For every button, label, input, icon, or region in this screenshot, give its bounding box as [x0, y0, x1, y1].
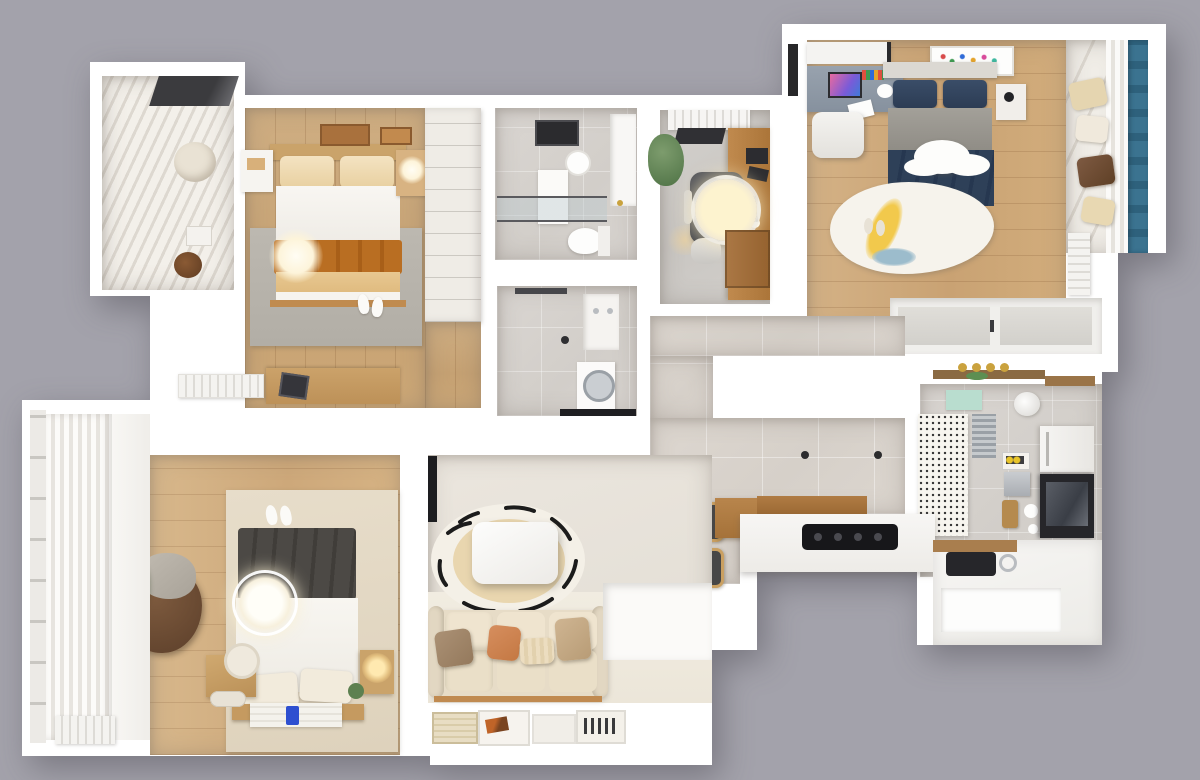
master-ceiling-lamp	[269, 229, 323, 283]
living-room	[428, 455, 712, 703]
master-balcony-blinds	[102, 76, 234, 290]
breakfast-tray	[210, 691, 246, 707]
sink-counter-block	[933, 540, 1102, 645]
kids-radiator	[1068, 233, 1090, 295]
artwork-3	[532, 714, 576, 744]
balcony-ledge	[112, 414, 150, 740]
bay-pillow-cream	[1075, 114, 1110, 143]
kids-wardrobe	[890, 298, 1102, 354]
bull-logo-icon	[162, 417, 198, 449]
projector-screen	[674, 128, 726, 144]
teal-curtain	[1128, 40, 1148, 253]
wardrobe-handle	[990, 320, 994, 332]
master-balcony	[102, 76, 234, 290]
kids-nightstand	[996, 84, 1026, 120]
balcony-window-glass	[149, 76, 239, 106]
oven	[1040, 474, 1094, 538]
laundry-vanity	[583, 294, 619, 350]
phone	[286, 706, 299, 725]
master-footboard	[270, 300, 406, 307]
cooktop	[802, 524, 898, 550]
pillow-orange	[486, 624, 521, 661]
cooktop-burners	[814, 533, 822, 541]
radiator-unit	[178, 374, 264, 398]
master-pillow-left	[280, 156, 334, 188]
small-plant	[348, 683, 364, 699]
counter-step	[941, 588, 1061, 632]
sheer-curtains	[46, 414, 112, 740]
cutting-board	[1002, 500, 1018, 528]
toilet-tank	[598, 226, 610, 256]
ceiling-exhaust-vent	[535, 120, 579, 146]
bowls	[1024, 504, 1038, 518]
wardrobe-door-1	[898, 307, 990, 345]
floor-socket-1	[801, 451, 809, 459]
second-bedroom	[150, 455, 400, 755]
desk-organizer-1	[746, 148, 768, 164]
laptop-screen	[828, 72, 862, 98]
ac-unit	[668, 110, 750, 130]
round-mirror	[567, 152, 589, 174]
brand-name-en: HONG NIU DECORATION	[206, 443, 333, 450]
b-pillow-right	[299, 668, 353, 704]
fridge-handle	[1046, 432, 1049, 466]
hallway-corridor	[650, 356, 713, 420]
kitchen-sink	[946, 552, 996, 576]
study-cabinet	[725, 230, 770, 288]
spice-board	[1002, 452, 1030, 470]
warm-table-lamp	[362, 653, 392, 683]
door-threshold-mat	[560, 409, 636, 416]
kids-pillow-left	[893, 80, 937, 108]
gold-faucet	[617, 200, 623, 206]
kids-room-door-opening	[788, 44, 798, 96]
master-wardrobe	[425, 108, 481, 322]
books-stack	[247, 158, 265, 170]
kitchen-peninsula	[715, 496, 935, 574]
washer-door	[583, 370, 615, 402]
shower-rail	[515, 288, 567, 294]
watermark: 红牛装饰 HONG NIU DECORATION	[162, 412, 392, 454]
kids-pillow-right	[943, 80, 987, 108]
master-pillow-right	[340, 156, 394, 188]
study-plant	[648, 134, 684, 186]
master-bedroom	[245, 108, 425, 408]
straw-hat	[224, 643, 260, 679]
balcony-pouf	[174, 142, 216, 182]
shower-glass-panel	[497, 196, 607, 222]
upper-shelf	[1045, 376, 1095, 386]
window-seat-bay	[1066, 40, 1148, 253]
bedside-lamp	[398, 156, 426, 184]
sink-faucet	[999, 554, 1017, 572]
balcony-panel	[186, 226, 212, 246]
herb-plants	[966, 372, 988, 380]
cloud-pillow	[914, 140, 970, 174]
study-room	[660, 110, 770, 304]
bay-pillow-beige-2	[1080, 195, 1116, 226]
wood-counter-strip	[757, 496, 867, 514]
bath-vanity	[610, 114, 636, 206]
fridge	[1040, 426, 1094, 472]
kids-headboard	[883, 62, 997, 78]
knit-blanket-ball	[174, 252, 202, 278]
watermark-text: 红牛装饰 HONG NIU DECORATION	[206, 417, 333, 450]
sink-wood-ledge	[933, 540, 1017, 552]
pillow-cream	[519, 637, 554, 665]
coffee-machine	[1004, 472, 1030, 496]
second-balcony	[30, 408, 150, 746]
dish-rack	[972, 414, 996, 458]
sink-faucet-1	[593, 308, 599, 314]
pillow-beige	[554, 617, 592, 662]
rug-blue-patch	[872, 248, 916, 266]
range-hood	[1014, 392, 1040, 416]
sink-faucet-2	[607, 308, 613, 314]
artwork-1	[432, 712, 478, 744]
sliding-door-track	[933, 370, 1045, 379]
floor-drain	[561, 336, 569, 344]
sofa	[430, 610, 606, 704]
oven-glass	[1046, 482, 1088, 526]
wardrobe-door-2	[1000, 307, 1092, 345]
artwork-2	[478, 710, 530, 746]
pencil-case	[862, 70, 884, 80]
recessed-ceiling-light	[807, 42, 891, 64]
artwork-4	[576, 710, 626, 744]
mint-mat	[946, 390, 982, 410]
bay-pillow-brown	[1076, 154, 1116, 189]
master-door-area	[425, 322, 481, 408]
window-frame	[30, 410, 46, 743]
hallway-floor-upper	[650, 316, 905, 356]
wall-art-frame-2	[380, 127, 412, 145]
spice-labels	[1006, 456, 1024, 464]
bathroom	[495, 108, 637, 260]
round-floor-lamp	[232, 570, 298, 636]
floor-socket-2	[874, 451, 882, 459]
laundry-bath	[497, 286, 637, 416]
half-wall-ledge	[603, 583, 712, 660]
toilet	[568, 228, 602, 254]
artwork-2-abstract	[485, 716, 509, 734]
brand-name-zh: 红牛装饰	[206, 417, 333, 440]
floorplan-render: 红牛装饰 HONG NIU DECORATION	[0, 0, 1200, 780]
cups-on-shelf	[958, 363, 967, 372]
kids-chair	[812, 112, 864, 158]
coffee-table	[472, 522, 558, 584]
pillow-brown	[434, 628, 475, 669]
photo-frame-on-desk	[278, 372, 309, 400]
gallery-wall	[415, 700, 712, 765]
wall-art-frame-1	[320, 124, 370, 146]
kids-lamp	[1004, 92, 1014, 102]
nightstand-left	[241, 150, 273, 192]
kids-bedroom	[807, 40, 1066, 334]
artwork-4-glyphs	[584, 718, 616, 734]
kids-slippers	[864, 218, 873, 234]
balcony-radiator	[55, 716, 115, 744]
